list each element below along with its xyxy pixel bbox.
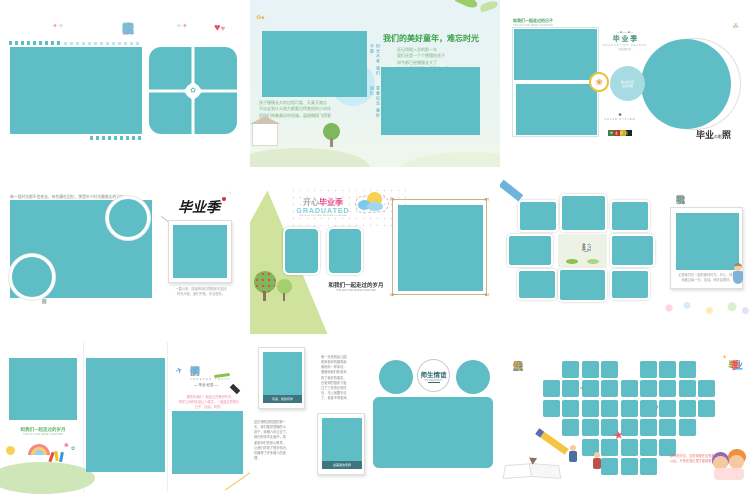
heart-photo-tile[interactable]: [640, 458, 657, 475]
leaf-icon: [479, 0, 498, 12]
heart-photo-tile[interactable]: [640, 361, 657, 378]
photo-placeholder-circle[interactable]: [106, 196, 150, 240]
photo-caption: 一直以来，感谢有你们的陪伴与支持 时光不老，我们不散，毕业快乐。: [166, 287, 236, 297]
heart-photo-tile[interactable]: [562, 400, 579, 417]
heart-photo-tile[interactable]: [601, 400, 618, 417]
sun-icon: [6, 446, 15, 455]
dotted-strip: [90, 136, 142, 140]
plant-decor-icon: ☘: [732, 22, 739, 31]
framed-photo[interactable]: [168, 220, 232, 283]
flourish-icon: ❧: [483, 195, 490, 204]
kid-face: [729, 455, 744, 469]
heart-photo-tile[interactable]: [621, 458, 638, 475]
bush-icon: [587, 259, 599, 264]
photo-placeholder[interactable]: [516, 84, 597, 135]
photo-placeholder-circle[interactable]: [456, 360, 490, 394]
template-card-2[interactable]: ✿❀ 时光不老 我们不散 青春纪念 美好回忆 我们的美好童年，难忘时光 还记得刚…: [250, 0, 500, 167]
tiny-person-body: [569, 451, 577, 462]
subtitle2: — 毕业·纪念 —: [194, 383, 218, 388]
photo-placeholder[interactable]: [676, 213, 739, 270]
photo-placeholder[interactable]: [514, 29, 597, 80]
heart-photo-tile[interactable]: [562, 419, 579, 436]
photo-placeholder[interactable]: [610, 200, 650, 232]
photo-placeholder[interactable]: [610, 234, 655, 267]
photo-caption: 毕业の影照: [696, 125, 731, 143]
flower-badge-icon: ❀: [589, 72, 609, 92]
photo-placeholder-circle[interactable]: [641, 39, 731, 129]
heart-photo-tile[interactable]: [582, 380, 599, 397]
photo-placeholder[interactable]: [322, 418, 362, 461]
star-icon: ★: [612, 427, 625, 443]
photo-placeholder[interactable]: [283, 227, 320, 275]
cloud-icon: [367, 202, 383, 211]
paragraph: 还记得刚进校园的那一 天，我们都是懵懂的小 孩子，转眼六年过去了， 我们即将毕业…: [254, 420, 302, 461]
logo-title: 毕 业 季: [596, 34, 654, 44]
photo-placeholder-circle[interactable]: [379, 360, 413, 394]
template-card-8[interactable]: 同桌，我的同学 还记得刚进校园的那一 天，我们都是懵懂的小 孩子，转眼六年过去了…: [250, 334, 500, 500]
tree-trunk: [283, 293, 285, 301]
hearts-icon: ♥♥: [214, 18, 225, 36]
panel1-caption: 和我们一起走过的岁月 THE DAYS WE WERE TOGETHER: [8, 427, 78, 436]
template2-title: 我们的美好童年，难忘时光: [383, 33, 487, 44]
rainbow-icon: [34, 450, 44, 455]
heart-photo-tile[interactable]: [582, 361, 599, 378]
heart-photo-tile[interactable]: [582, 419, 599, 436]
framed-photo[interactable]: 最美丽的老师: [317, 413, 365, 475]
leaf-icon: [455, 0, 479, 10]
photo-placeholder[interactable]: [558, 268, 607, 302]
heart-photo-tile[interactable]: [679, 400, 696, 417]
photo-placeholder[interactable]: [517, 269, 557, 300]
heart-photo-tile[interactable]: [582, 400, 599, 417]
subtitle: GRADUATED: [294, 208, 352, 215]
open-book-page: [529, 463, 562, 479]
photo-placeholder[interactable]: [381, 67, 480, 135]
footer-brand: SOLAR SYSTEM: [595, 118, 645, 121]
crayon-icon: [54, 451, 58, 461]
title-medallion: 师生情谊 记忆中最美好的时光: [417, 359, 450, 392]
heart-photo-tile[interactable]: [640, 419, 657, 436]
photo-caption-bar: 最美丽的老师: [322, 461, 362, 469]
heart-photo-tile[interactable]: [659, 361, 676, 378]
photo-placeholder[interactable]: [507, 234, 553, 267]
graduation-cap-icon: [230, 384, 241, 395]
template-gallery: ✦✧ 我们毕业啦 ✧✦ ♥♥ ✿ ✿❀ 时光不老 我们不散 青春纪念 美好回忆 …: [0, 0, 750, 500]
fruit-tree-icon: [254, 271, 276, 293]
pencil-icon: [500, 177, 523, 202]
template-card-4[interactable]: 每一段时光都不会老去，有些藏在回忆，那是年少时光最难忘的记忆。 致我们最美的毕业…: [0, 167, 250, 334]
photo-placeholder[interactable]: [262, 31, 367, 97]
photo-placeholder[interactable]: [398, 205, 483, 291]
subtitle: FOREVER YOUTH: [190, 378, 231, 381]
heart-photo-tile[interactable]: [601, 458, 618, 475]
paper-plane-icon: ✈: [175, 365, 184, 376]
template-card-1[interactable]: ✦✧ 我们毕业啦 ✧✦ ♥♥ ✿: [0, 0, 250, 167]
star-decor-right-icon: ✧✦: [176, 22, 188, 30]
heart-photo-tile[interactable]: [679, 361, 696, 378]
photo-placeholder-circle[interactable]: [9, 254, 55, 300]
tree-trunk: [330, 138, 333, 147]
page-divider: [167, 342, 168, 492]
kid-bodies: [714, 468, 744, 480]
heart-photo-tile[interactable]: [679, 380, 696, 397]
tree-icon: [277, 279, 292, 294]
flourish-icon: ❧: [389, 195, 396, 204]
crayon-icon: [59, 452, 64, 462]
house-roof: [250, 116, 280, 124]
doodle-strip: [660, 295, 750, 321]
photo-grid-panel[interactable]: ✿: [149, 47, 237, 134]
center-caption-block: 和我们一起走过的岁月 THE DAYS WE WERE TOGETHER: [328, 281, 384, 292]
heart-photo-tile[interactable]: [659, 400, 676, 417]
divider: [428, 382, 440, 383]
heart-photo-tile[interactable]: [601, 380, 618, 397]
flower-icon: ❀: [64, 442, 69, 449]
center-graphic: 毕业季!: [558, 234, 607, 267]
heart-photo-tile[interactable]: [659, 419, 676, 436]
photo-placeholder[interactable]: [86, 358, 165, 472]
heart-photo-tile[interactable]: [543, 380, 560, 397]
accent-marks-icon: 〝: [226, 191, 231, 198]
logo-block: —♣——♣— 毕 业 季 GRADUATION SEASON “ 相遇便是缘 ”: [596, 30, 654, 51]
calligraphy-title: 毕业季: [178, 197, 220, 217]
template-card-5[interactable]: 开心毕业季 GRADUATED THE GOOD OLD DAYS WE SPE…: [250, 167, 500, 334]
girl-illustration-head: [734, 263, 742, 271]
star-decor-icon: ✦: [722, 354, 727, 361]
flourish-icon: ❧: [483, 290, 490, 299]
heart-photo-tile[interactable]: [621, 400, 638, 417]
template-card-9[interactable]: 快乐童年 ✦ 毕业季 ᵛᵛ ✈ ★ 那时的天空，总觉得现在没有那时候的蓝 以后，…: [500, 334, 750, 500]
heart-photo-tile[interactable]: [679, 419, 696, 436]
logo-tagline: “ 相遇便是缘 ”: [596, 47, 654, 51]
title-block: 开心毕业季 GRADUATED THE GOOD OLD DAYS WE SPE…: [294, 197, 352, 217]
bush-icon: [566, 259, 578, 264]
photo-caption-bar: 同桌，我的同学: [263, 395, 302, 403]
heart-photo-tile[interactable]: [562, 380, 579, 397]
vertical-caption: 时光不老 我们不散: [369, 44, 381, 80]
tagline: THE GOOD OLD DAYS WE SPENT TOGETHER: [294, 215, 352, 217]
footer-logo-block: ♣ SOLAR SYSTEM 毕业纪念: [595, 112, 645, 139]
photo-placeholder[interactable]: [10, 47, 142, 134]
photo-placeholder[interactable]: [560, 194, 607, 232]
flower-decor-icon: ✿❀: [256, 14, 264, 21]
girl-illustration-body: [733, 271, 743, 284]
dotted-strip: [64, 42, 142, 45]
hill-illustration: [250, 148, 370, 167]
caption-circle: 美好的回忆 值得珍藏: [610, 66, 645, 101]
dotted-strip: [9, 41, 61, 45]
heart-photo-tile[interactable]: [621, 380, 638, 397]
ornate-frame: ❧ ❧ ❧ ❧: [392, 199, 487, 295]
template-card-6[interactable]: 毕业季! 我毕业啦 记录我们在一起的美好时光，开心、快乐 地度过每一天，加油，明…: [500, 167, 750, 334]
tiny-person-body: [593, 458, 601, 469]
photo-placeholder[interactable]: [9, 358, 77, 420]
house-illustration: [252, 122, 278, 146]
heart-photo-tile[interactable]: [698, 400, 715, 417]
framed-photo[interactable]: 同桌，我的同学: [258, 347, 305, 409]
hill-illustration: [400, 152, 500, 167]
tree-trunk: [263, 291, 266, 301]
photo-placeholder[interactable]: [172, 411, 243, 474]
hill-illustration: [0, 462, 95, 494]
photo-placeholder[interactable]: [373, 397, 493, 468]
template-card-7[interactable]: 和我们一起走过的岁月 THE DAYS WE WERE TOGETHER ❀ ✿…: [0, 334, 250, 500]
photo-placeholder[interactable]: [518, 200, 558, 232]
heart-photo-tile[interactable]: [640, 380, 657, 397]
photo-placeholder[interactable]: [610, 269, 650, 300]
template-card-3[interactable]: 和我们一起走过的日子 THE DAYS WE WERE TOGETHER —♣—…: [500, 0, 750, 167]
photo-caption: 记录我们在一起的美好时光，开心、快乐 地度过每一天，加油，明天会更好。: [675, 273, 739, 283]
star-decor-left-icon: ✦✧: [52, 22, 64, 30]
heart-photo-tile[interactable]: [543, 400, 560, 417]
heart-photo-tile[interactable]: [640, 439, 657, 456]
heart-photo-tile[interactable]: [562, 361, 579, 378]
photo-placeholder[interactable]: [327, 227, 363, 275]
heart-photo-tile[interactable]: [659, 380, 676, 397]
flourish-icon: ❧: [389, 290, 396, 299]
pink-caption: 那些年我们一起走过的美好时光 同学之间的情谊让人难忘，一起度过的快乐日子，加油，…: [178, 395, 240, 410]
heart-photo-tile[interactable]: [698, 380, 715, 397]
photo-placeholder[interactable]: [263, 352, 302, 395]
vertical-caption: 青春纪念 美好回忆: [369, 86, 381, 122]
footer-badge: 毕业纪念: [608, 130, 632, 136]
flower-icon: ✿: [71, 446, 75, 452]
heart-photo-tile[interactable]: [601, 361, 618, 378]
photo-placeholder[interactable]: [173, 225, 227, 278]
center-badge-icon: ✿: [186, 83, 201, 98]
paragraph: 第一天来到幼儿园 看到老师的微笑就 像妈妈一样亲切， 慢慢地我们和老师 成了最好…: [321, 355, 359, 401]
birds-doodle-icon: ᵛᵛ: [580, 386, 583, 392]
